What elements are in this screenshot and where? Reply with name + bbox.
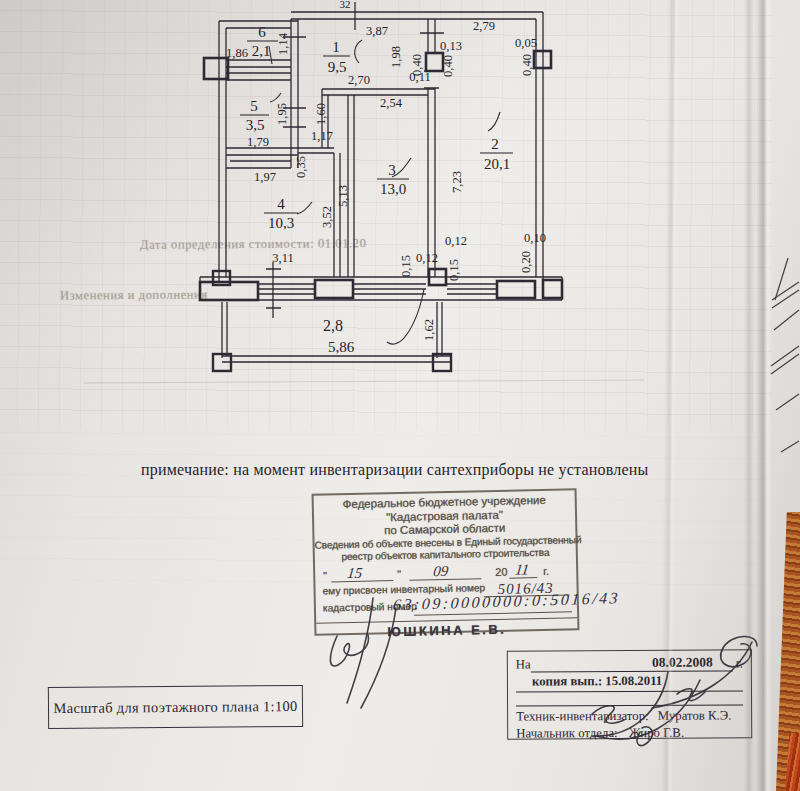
- leader-room6: [269, 46, 272, 64]
- wall-room5-bottom: [226, 148, 298, 168]
- window-pier: [200, 282, 258, 300]
- background-sheet-line: [771, 346, 799, 374]
- dim-label: 0,13: [440, 39, 462, 53]
- balcony-post: [213, 271, 230, 285]
- wall-room1-room2: [424, 19, 439, 277]
- dim-label: 3,11: [272, 251, 293, 265]
- dim-label: 0,15: [447, 259, 461, 281]
- dim-label: 0,40: [520, 54, 534, 76]
- room-number: 2: [491, 136, 499, 152]
- dim-label: 1,17: [311, 129, 333, 143]
- paper-crease: [744, 0, 754, 791]
- dimension-labels: 32 3,87 2,79 0,05 1,86 2,70 2,54 0,13 0,…: [226, 0, 546, 355]
- year-suffix: г.: [736, 656, 743, 671]
- leader-room5: [270, 93, 281, 102]
- dim-label: 0,11: [409, 70, 430, 84]
- wall-room6-top: [219, 21, 298, 28]
- quote-mark: ": [397, 567, 401, 579]
- wall-room6-room5: [226, 60, 291, 80]
- dim-label: 0,40: [410, 54, 424, 76]
- year-prefix: 20: [495, 565, 507, 577]
- window-pier: [543, 280, 562, 298]
- inventory-note: примечание: на момент инвентаризации сан…: [141, 461, 681, 479]
- scale-box: Масштаб для поэтажного плана 1:100: [48, 685, 303, 729]
- leader-room2: [488, 112, 500, 131]
- technician-label: Техник-инвентаризатор:: [516, 709, 649, 724]
- balcony-post: [213, 354, 231, 371]
- stamp-month-handwritten: 09: [432, 562, 449, 579]
- dim-label: 1,62: [422, 319, 436, 341]
- dim-label: 2,54: [380, 96, 403, 110]
- room-area: 9,5: [328, 59, 347, 75]
- wall-bottom: [200, 277, 562, 300]
- wall-top: [291, 12, 543, 19]
- copy-date: 15.08.2011: [605, 674, 662, 688]
- dim-label: 0,12: [445, 234, 467, 248]
- bleed-through-text: Дата определения стоимости: 01.01.20: [140, 236, 367, 253]
- dim-label: 7,23: [450, 171, 464, 193]
- room-number: 5: [250, 98, 258, 114]
- dim-label: 5,13: [336, 185, 350, 207]
- column: [426, 53, 443, 71]
- dim-label: 0,05: [515, 36, 537, 50]
- copy-date-row: копия вып.: 15.08.2011: [516, 673, 743, 692]
- grid-overlay-top: [0, 0, 772, 430]
- date-underline: [331, 580, 393, 582]
- dim-label: 0,10: [524, 231, 546, 245]
- door-arc: [355, 40, 362, 63]
- dim-label: 5,86: [328, 339, 355, 355]
- wall-niche-jog: [298, 148, 334, 153]
- leader-room4: [297, 202, 312, 214]
- bleed-through-rule: [84, 380, 644, 384]
- room-number: 6: [258, 24, 266, 40]
- dim-label: 0,20: [519, 251, 533, 273]
- department-head-label: Начальник отдела:: [516, 726, 618, 741]
- dim-label: 1,79: [247, 135, 269, 149]
- room-area: 2,1: [252, 43, 271, 59]
- window: [353, 284, 426, 294]
- balcony-post: [433, 354, 451, 371]
- balcony-column: [429, 269, 446, 285]
- window-pier: [497, 281, 535, 298]
- bleed-through-text: Изменения и дополнения: [60, 287, 208, 303]
- dim-label: 0,40: [441, 55, 455, 77]
- background-sheet-line: [774, 310, 799, 330]
- dim-label: 2,70: [348, 73, 370, 87]
- window-pier: [315, 280, 353, 298]
- survey-date: 08.02.2008: [531, 655, 719, 673]
- cadastral-stamp: Федеральное бюджетное учреждение "Кадаст…: [312, 488, 580, 636]
- leader-balcony: [387, 289, 424, 344]
- column: [534, 51, 551, 68]
- dim-label: 3,52: [320, 206, 334, 228]
- dimension-tick: [283, 33, 444, 127]
- dimension-tick: [266, 262, 281, 318]
- room-area: 13,0: [380, 181, 406, 197]
- department-head-name: Жиро Г.В.: [629, 726, 684, 740]
- room-area: 10,3: [268, 215, 294, 231]
- dim-label: 1,98: [389, 46, 403, 68]
- dim-label: 32: [340, 0, 351, 10]
- scanned-floor-plan-document: { "plan": { "rooms": [ {"num":"1","area"…: [0, 0, 800, 791]
- dates-signatures-box: На 08.02.2008 г. копия вып.: 15.08.2011 …: [507, 649, 752, 739]
- na-label: На: [516, 658, 531, 673]
- technician-row: Техник-инвентаризатор: Муратов К.Э.: [516, 708, 743, 724]
- dim-label: 1,95: [275, 103, 289, 125]
- dim-label: 0,15: [399, 255, 413, 277]
- background-sheet-line: [772, 282, 799, 308]
- dim-label: 1,97: [254, 170, 276, 184]
- background-sheet-drawing: [771, 258, 799, 452]
- room-number: 4: [277, 196, 285, 212]
- spacer-underline: [719, 670, 733, 671]
- blank-rule: [516, 691, 743, 706]
- dim-label: 2,8: [323, 317, 343, 334]
- background-sheet-line: [776, 394, 799, 452]
- leader-room3: [392, 158, 411, 177]
- room-area: 20,1: [484, 156, 510, 172]
- room-area: 3,5: [246, 117, 265, 133]
- paper-edge-shadow: [756, 0, 772, 791]
- room-number: 3: [388, 162, 396, 178]
- quote-mark: ": [323, 569, 327, 581]
- dim-label: 1,60: [314, 103, 328, 125]
- year-suffix: г.: [543, 564, 549, 576]
- stamp-year-handwritten: 11: [514, 561, 530, 578]
- wall-room6-right: [291, 19, 298, 80]
- room-labels: 1 9,5 2 20,1 3 13,0 4 10,3 5 3,5 6 2,1: [240, 24, 513, 231]
- leader-lines: [269, 40, 500, 344]
- background-sheet-line: [775, 258, 788, 300]
- room-number: 1: [332, 39, 340, 55]
- window: [447, 284, 497, 294]
- survey-date-row: На 08.02.2008 г.: [516, 653, 743, 672]
- window: [258, 284, 315, 294]
- dim-label: 1,14: [276, 32, 290, 55]
- stamp-day-handwritten: 15: [346, 564, 363, 581]
- pilaster: [204, 58, 228, 79]
- balcony-rails: [222, 302, 450, 362]
- wall-room1-bottom: [322, 89, 435, 95]
- department-head-row: Начальник отдела: Жиро Г.В.: [516, 725, 743, 741]
- dim-label: 0,35: [294, 156, 308, 178]
- wall-right: [536, 12, 543, 280]
- wall-room5-right: [291, 80, 298, 168]
- stamp-signatory-name: Юшкина Е.В.: [316, 617, 577, 640]
- dim-label: 1,86: [226, 46, 248, 60]
- wall-niche-vertical: [322, 89, 328, 148]
- copy-label: копия вып.:: [532, 674, 602, 688]
- plan-walls: [200, 2, 562, 371]
- dim-label: 2,79: [473, 19, 495, 33]
- dim-label: 3,87: [366, 24, 388, 38]
- dim-label: 0,12: [416, 251, 438, 265]
